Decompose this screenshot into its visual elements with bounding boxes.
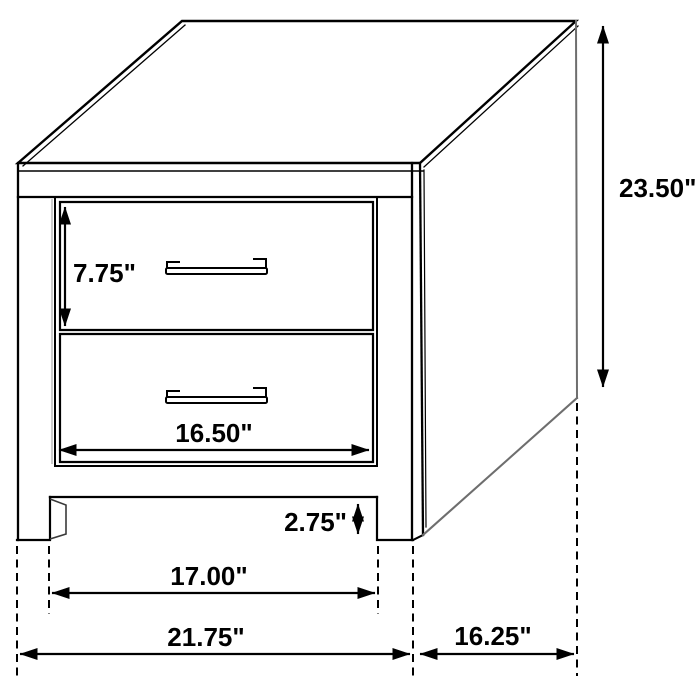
handle-bar (166, 268, 267, 274)
dimension-label-overall-height: 23.50" (619, 173, 696, 203)
side-panel-front-edge-inner-line (424, 170, 426, 527)
side-panel-front-edge (420, 163, 423, 535)
front-right-leg (377, 497, 413, 540)
dimension-label-overall-depth: 16.25" (454, 621, 531, 651)
back-left-leg-lines (50, 499, 66, 539)
handle-right-post (254, 388, 266, 397)
diagram-canvas: 23.50" 7.75" 16.50" 2.75" 17.00" (0, 0, 700, 700)
dimension-drawer-front-height: 7.75" (65, 207, 136, 326)
dimension-overall-width: 21.75" (20, 622, 410, 654)
leg-to-side-panel-connector (413, 535, 423, 540)
tabletop-outline (18, 21, 576, 163)
handle-right-post (254, 259, 266, 268)
dimension-base-clearance: 2.75" (284, 504, 358, 537)
dimension-annotations: 23.50" 7.75" 16.50" 2.75" 17.00" (17, 26, 696, 676)
dimension-label-base-clearance: 2.75" (284, 507, 347, 537)
top-drawer-handle (166, 259, 267, 274)
dimension-leg-span: 17.00" (52, 561, 375, 593)
tabletop-right-edge-inner-line (424, 26, 578, 167)
dimension-label-leg-span: 17.00" (170, 561, 247, 591)
back-left-leg-hint (50, 499, 66, 539)
dimension-label-drawer-front-height: 7.75" (73, 258, 136, 288)
front-left-leg (17, 497, 50, 540)
dimension-drawer-width: 16.50" (59, 418, 369, 450)
handle-bar (166, 397, 267, 403)
dimension-overall-depth: 16.25" (420, 621, 574, 654)
nightstand-dimension-diagram: 23.50" 7.75" 16.50" 2.75" 17.00" (0, 0, 700, 700)
dimension-label-overall-width: 21.75" (167, 622, 244, 652)
side-panel-bottom-edge (423, 398, 577, 535)
side-panel-back-edge (576, 21, 577, 398)
dimension-label-drawer-width: 16.50" (175, 418, 252, 448)
tabletop-left-edge-inner-line (23, 25, 185, 166)
dimension-overall-height: 23.50" (603, 26, 696, 387)
bottom-drawer-handle (166, 388, 267, 403)
